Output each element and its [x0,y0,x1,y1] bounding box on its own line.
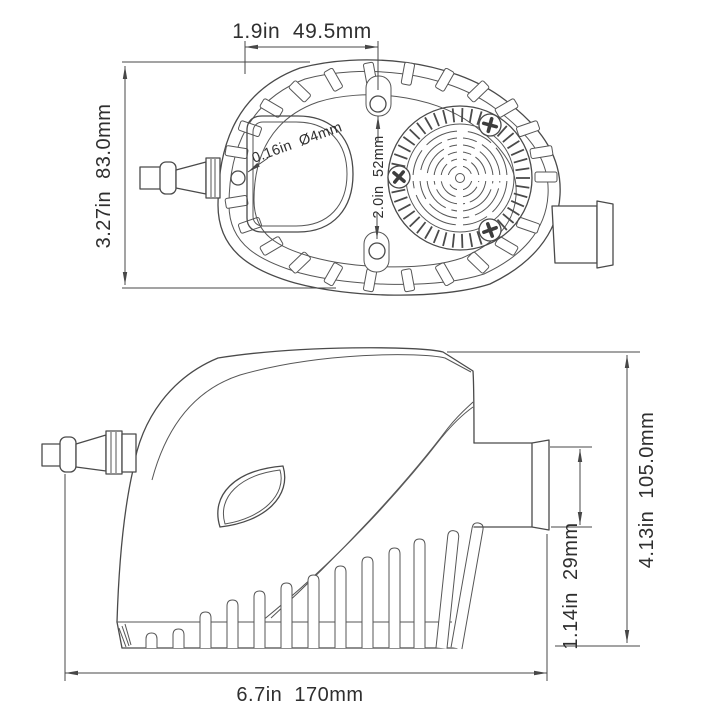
dim-side-height-label: 4.13in 105.0mm [636,412,658,568]
bilge-pump-dimension-drawing: 0.16in Ø4mm 2.0in 52mm 1.9in 49.5mm 3.27… [0,0,720,720]
dim-side-height: 4.13in 105.0mm [447,352,658,646]
oval-recess [218,466,285,527]
base-intake-slots [146,522,484,649]
dim-side-length-label: 6.7in 170mm [236,684,363,706]
outlet-port-top-view [552,201,613,268]
dim-top-width-label: 1.9in 49.5mm [232,20,372,43]
strainer-cover [384,106,532,250]
technical-drawing-page: 0.16in Ø4mm 2.0in 52mm 1.9in 49.5mm 3.27… [0,0,720,720]
dim-outlet-height: 1.14in 29mm [550,447,592,650]
dim-pilot-hole-label: 0.16in Ø4mm [250,119,344,166]
cable-gland-top-view [140,158,220,198]
strainer-center-hole [456,174,465,183]
dim-outlet-height-label: 1.14in 29mm [560,522,582,649]
outlet-port-side-view [474,440,549,530]
top-view: 0.16in Ø4mm 2.0in 52mm 1.9in 49.5mm 3.27… [93,20,613,295]
dim-side-length: 6.7in 170mm [65,474,547,706]
dim-hole-spacing-label: 2.0in 52mm [371,135,387,218]
dim-top-width: 1.9in 49.5mm [232,20,378,90]
dim-top-height-label: 3.27in 83.0mm [93,104,115,249]
cable-gland-side-view [42,431,136,474]
dim-hole-spacing: 2.0in 52mm [371,116,387,239]
side-view: 6.7in 170mm 4.13in 105.0mm 1.14in 29mm [42,348,658,706]
